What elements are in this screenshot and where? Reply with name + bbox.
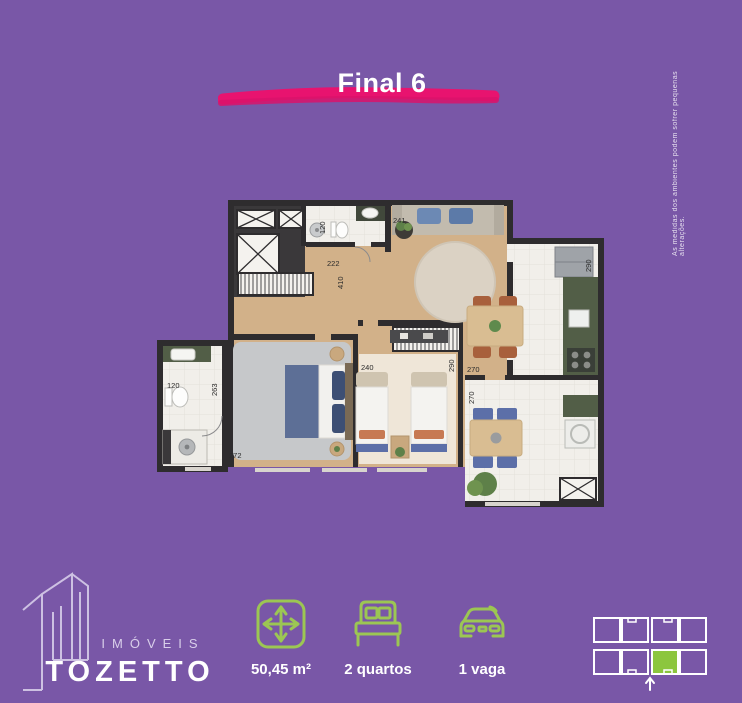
measurement-label: 290 [584, 259, 593, 272]
flyer-page: Final 6 As medidas dos ambientes podem s… [0, 0, 742, 703]
spec-parking: 1 vaga [422, 596, 542, 678]
north-arrow-icon [646, 678, 654, 690]
measurement-label: 270 [467, 365, 480, 374]
measurement-label: 120 [167, 381, 180, 390]
bed-icon [350, 596, 406, 652]
car-icon [454, 596, 510, 652]
logo-name: TOZETTO [30, 656, 230, 689]
floor-plan: 120 222 241 410 290 120 263 272 240 290 … [155, 190, 625, 520]
spec-bedrooms: 2 quartos [318, 596, 438, 678]
measurement-label: 263 [210, 383, 219, 396]
measurement-label: 410 [336, 276, 345, 289]
measurement-label: 290 [447, 359, 456, 372]
measurement-label: 120 [318, 221, 327, 234]
spec-parking-label: 1 vaga [422, 661, 542, 678]
logo-subtitle: IMÓVEIS [88, 636, 218, 651]
area-icon [253, 596, 309, 652]
measurement-label: 270 [467, 391, 476, 404]
measurement-label: 241 [393, 216, 406, 225]
measurement-label: 222 [327, 259, 340, 268]
measurement-label: 240 [361, 363, 374, 372]
page-title: Final 6 [11, 68, 742, 99]
measurement-label: 272 [229, 451, 242, 460]
spec-bedrooms-label: 2 quartos [318, 661, 438, 678]
wardrobe-hall [238, 273, 313, 295]
bedroom-1 [233, 342, 353, 460]
unit-locator-map [588, 608, 712, 694]
